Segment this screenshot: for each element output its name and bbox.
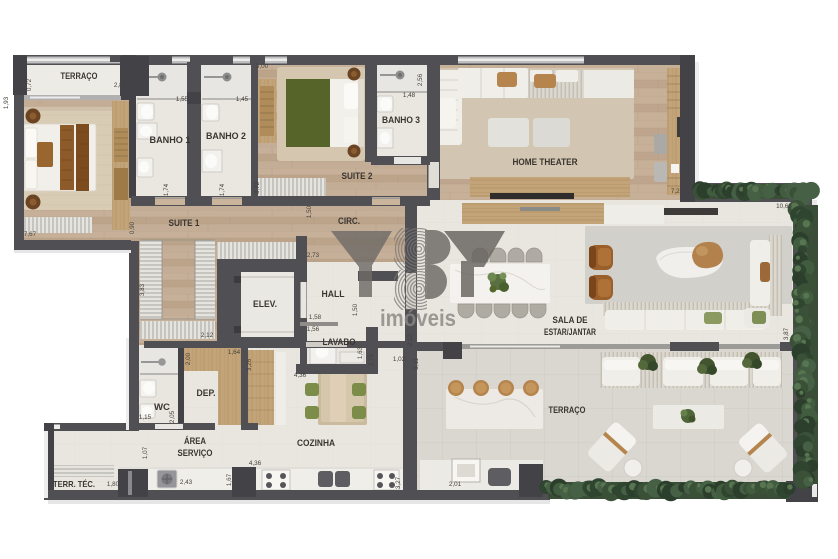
svg-text:1,56: 1,56: [307, 326, 320, 333]
svg-text:2,73: 2,73: [307, 252, 320, 259]
svg-text:imóveis: imóveis: [380, 305, 456, 331]
svg-text:HALL: HALL: [322, 289, 345, 299]
svg-text:2,01: 2,01: [449, 481, 462, 488]
svg-text:7,67: 7,67: [24, 231, 37, 238]
svg-text:2,05: 2,05: [169, 410, 176, 423]
svg-text:SUITE 2: SUITE 2: [342, 171, 373, 181]
svg-text:BANHO 3: BANHO 3: [382, 115, 420, 125]
svg-text:SERVIÇO: SERVIÇO: [178, 448, 213, 458]
svg-text:ESTAR/JANTAR: ESTAR/JANTAR: [544, 327, 596, 337]
svg-text:4,36: 4,36: [249, 460, 262, 467]
svg-text:3,00: 3,00: [256, 63, 269, 70]
svg-text:4,36: 4,36: [294, 372, 307, 379]
svg-text:SALA DE: SALA DE: [553, 315, 588, 325]
svg-text:1,63: 1,63: [357, 346, 364, 359]
svg-text:3,11: 3,11: [413, 358, 420, 370]
svg-text:BANHO 1: BANHO 1: [150, 135, 191, 145]
svg-text:TERR. TÉC.: TERR. TÉC.: [53, 479, 95, 489]
svg-text:1,15: 1,15: [139, 414, 152, 421]
svg-text:1,67: 1,67: [226, 473, 233, 486]
svg-text:SUITE 1: SUITE 1: [169, 218, 200, 228]
svg-text:HOME THEATER: HOME THEATER: [513, 157, 578, 167]
svg-text:2,43: 2,43: [180, 479, 193, 486]
svg-text:1,48: 1,48: [403, 92, 416, 99]
svg-text:LAVABO: LAVABO: [323, 337, 356, 347]
svg-text:1,55: 1,55: [176, 96, 189, 103]
svg-text:3,83: 3,83: [139, 283, 146, 296]
svg-text:1,45: 1,45: [236, 96, 249, 103]
svg-text:1,64: 1,64: [228, 349, 241, 356]
svg-text:0,72: 0,72: [26, 78, 33, 91]
svg-text:7,27: 7,27: [671, 188, 684, 195]
svg-text:1,50: 1,50: [352, 303, 359, 316]
svg-text:2,12: 2,12: [201, 332, 214, 339]
svg-text:2,76: 2,76: [368, 353, 375, 366]
svg-text:1,07: 1,07: [142, 446, 149, 459]
svg-text:3,72: 3,72: [254, 181, 261, 194]
svg-text:1,02: 1,02: [393, 356, 406, 363]
svg-text:2,56: 2,56: [417, 73, 424, 86]
svg-text:BANHO 2: BANHO 2: [206, 131, 246, 141]
svg-text:10,65: 10,65: [776, 203, 792, 210]
svg-text:1,74: 1,74: [163, 183, 170, 196]
svg-text:CIRC.: CIRC.: [338, 216, 360, 226]
svg-text:2,86: 2,86: [114, 82, 127, 89]
svg-text:1,58: 1,58: [309, 314, 322, 321]
svg-text:WC: WC: [154, 402, 171, 412]
svg-text:TERRAÇO: TERRAÇO: [549, 405, 586, 415]
svg-text:COZINHA: COZINHA: [297, 438, 335, 448]
svg-text:TERRAÇO: TERRAÇO: [61, 71, 98, 81]
svg-text:2,12: 2,12: [407, 333, 414, 346]
svg-text:1,80: 1,80: [107, 481, 120, 488]
svg-text:1,50: 1,50: [306, 205, 313, 218]
svg-text:ÁREA: ÁREA: [184, 436, 206, 446]
svg-text:2,00: 2,00: [185, 352, 192, 365]
svg-text:3,26: 3,26: [246, 358, 253, 371]
svg-text:DEP.: DEP.: [197, 388, 216, 398]
svg-text:1,74: 1,74: [219, 183, 226, 196]
svg-text:0,90: 0,90: [129, 221, 136, 234]
svg-text:ELEV.: ELEV.: [253, 299, 277, 309]
svg-text:1,93: 1,93: [3, 96, 10, 109]
svg-text:3,27: 3,27: [395, 476, 402, 489]
svg-text:3,87: 3,87: [783, 327, 790, 340]
